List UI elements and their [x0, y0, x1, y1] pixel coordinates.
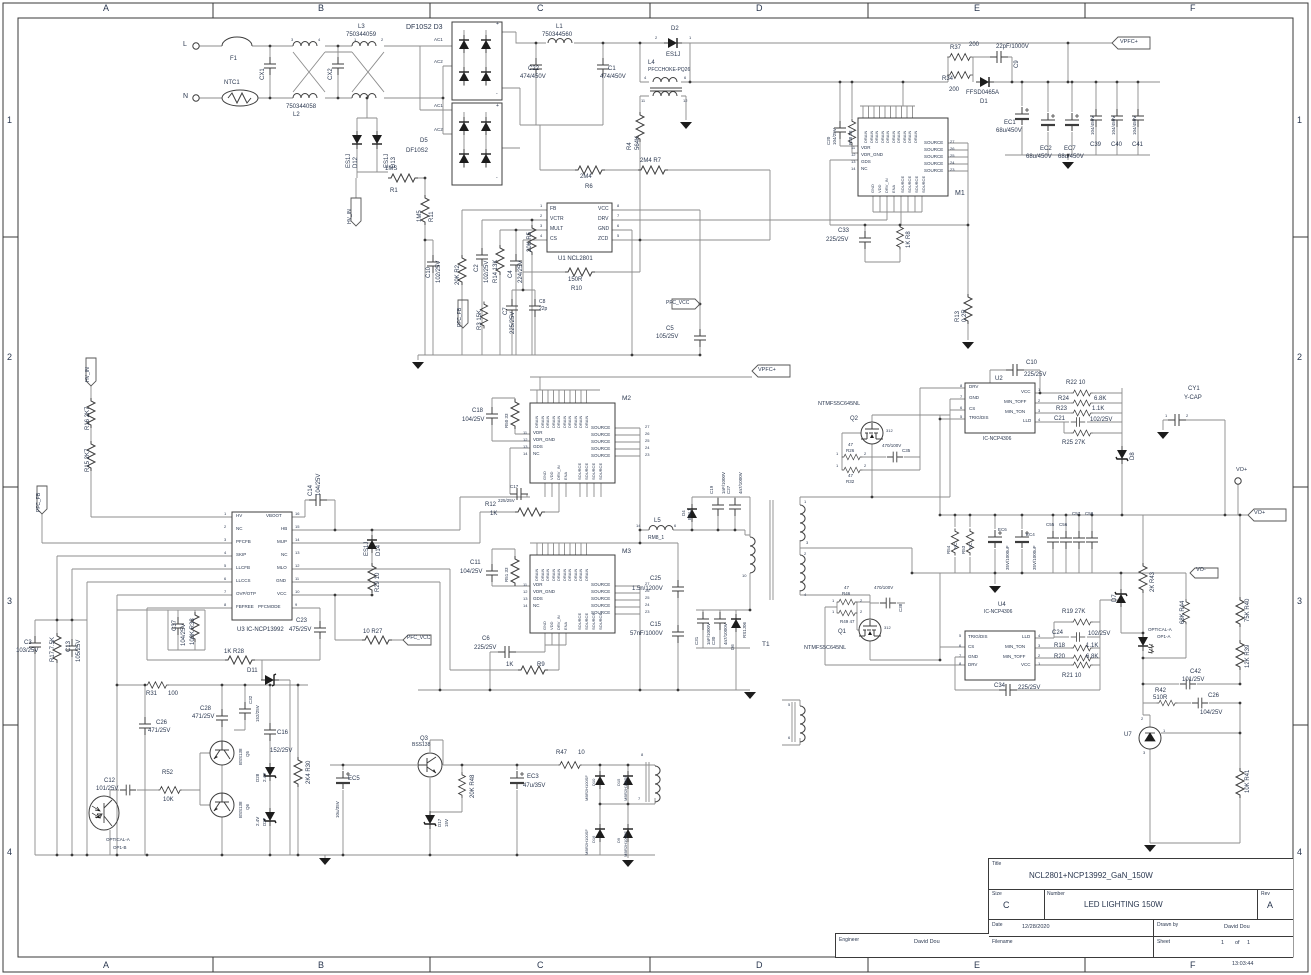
schematic-sheet: ABCDEFABCDEF12341234LNF1NTC1CX1CX2750344… [0, 0, 1311, 975]
size-label: Size [992, 891, 1002, 897]
timestamp: 13:03:44 [1232, 961, 1253, 967]
engineer-block: Engineer David Dou [835, 933, 989, 958]
rev-value: A [1267, 900, 1273, 910]
drawn-by-value: David Dou [1224, 924, 1250, 930]
number-label: Number [1047, 891, 1065, 897]
sheet-label: Sheet [1157, 939, 1170, 945]
drawn-by-label: Drawn by [1157, 922, 1178, 928]
title-label: Title [992, 861, 1001, 867]
number-value: LED LIGHTING 150W [1084, 900, 1163, 909]
size-value: C [1003, 900, 1010, 910]
sheet-total: 1 [1247, 940, 1250, 946]
schematic-canvas [0, 0, 1311, 975]
symbols [29, 22, 1286, 867]
date-value: 12/28/2020 [1022, 924, 1050, 930]
engineer-value: David Dou [914, 939, 940, 945]
wires [35, 32, 1248, 858]
schematic-title: NCL2801+NCP13992_GaN_150W [1029, 871, 1153, 880]
sheet-of: of [1235, 940, 1240, 946]
junction-dots [56, 42, 1242, 857]
date-label: Date [992, 922, 1003, 928]
rev-label: Rev [1261, 891, 1270, 897]
title-block: Title NCL2801+NCP13992_GaN_150W Size C N… [988, 858, 1293, 958]
filename-label: Filename [992, 939, 1013, 945]
sheet-no: 1 [1221, 940, 1224, 946]
engineer-label: Engineer [839, 937, 859, 943]
frame [3, 3, 1308, 972]
